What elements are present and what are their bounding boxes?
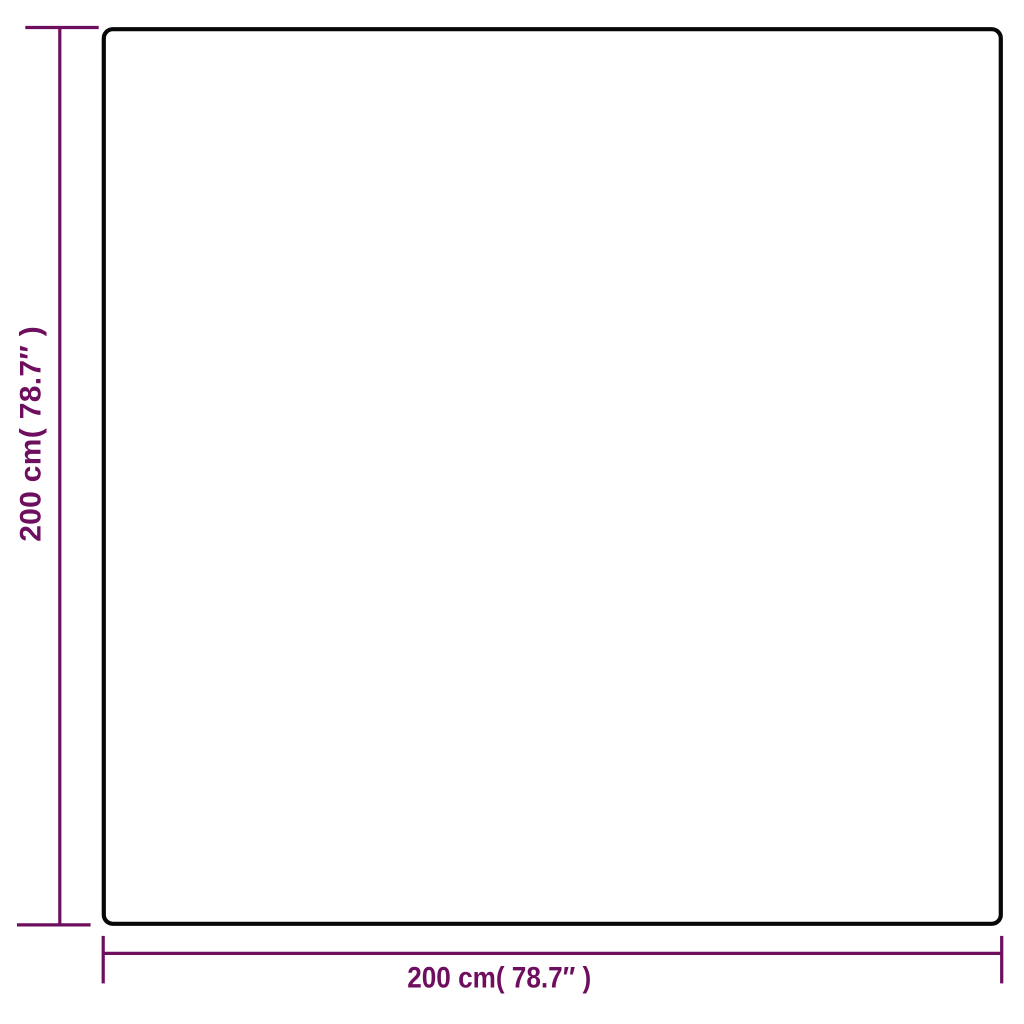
svg-text:200 cm( 78.7″ ): 200 cm( 78.7″ ) bbox=[15, 326, 48, 542]
svg-text:200 cm( 78.7″ ): 200 cm( 78.7″ ) bbox=[407, 961, 591, 994]
